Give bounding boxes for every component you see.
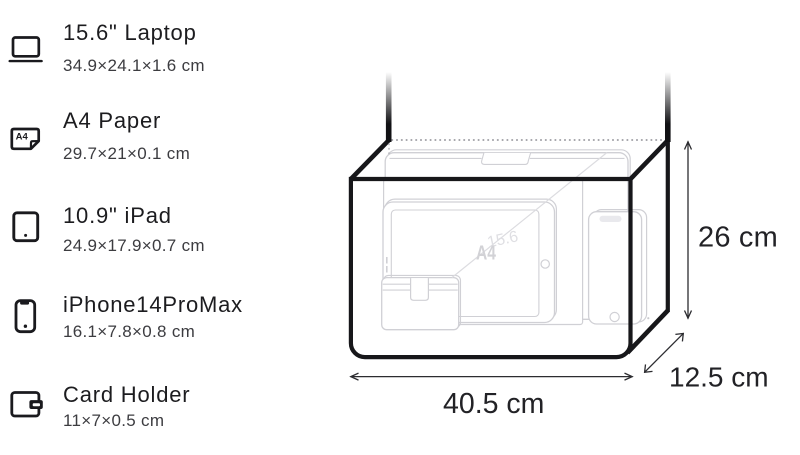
svg-text:A4: A4 (476, 242, 496, 264)
svg-text:26 cm: 26 cm (698, 222, 778, 254)
svg-text:12.5 cm: 12.5 cm (669, 362, 769, 393)
svg-text:40.5 cm: 40.5 cm (443, 388, 544, 420)
